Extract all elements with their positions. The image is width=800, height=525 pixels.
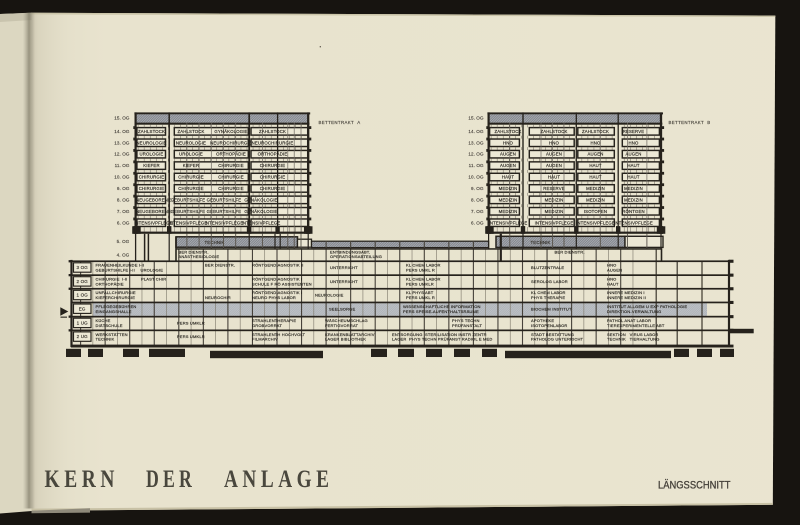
svg-text:NEUROCHIRURGIE: NEUROCHIRURGIE	[210, 140, 252, 145]
svg-text:HAUT: HAUT	[627, 175, 640, 180]
svg-text:NEUROCHIR: NEUROCHIR	[205, 295, 231, 300]
svg-text:CHIRURGIE: CHIRURGIE	[139, 186, 164, 191]
svg-text:10. OG: 10. OG	[468, 175, 484, 180]
svg-text:AUGEN: AUGEN	[625, 152, 641, 157]
svg-text:MEDIZIN: MEDIZIN	[624, 186, 643, 191]
svg-text:LAGER PHYS TECHN PRÜFANST RAD: LAGER PHYS TECHN PRÜFANST RADIOL E MED	[392, 337, 492, 342]
svg-text:INTENSIVPFLEGE: INTENSIVPFLEGE	[489, 220, 528, 225]
svg-text:PERS SPEISE-AUFENTHALTSRÄUME: PERS SPEISE-AUFENTHALTSRÄUME	[403, 309, 479, 314]
svg-text:8. OG: 8. OG	[117, 197, 130, 202]
svg-text:ZAHLSTOCK: ZAHLSTOCK	[138, 129, 165, 134]
svg-text:MEDIZIN: MEDIZIN	[499, 186, 518, 191]
svg-text:BETTENTRAKT A: BETTENTRAKT A	[319, 120, 361, 125]
svg-text:10. OG: 10. OG	[114, 175, 130, 180]
svg-text:PERS UMKLR: PERS UMKLR	[177, 334, 205, 339]
svg-text:HNO: HNO	[629, 140, 640, 145]
svg-text:GEBURTSHILFE: GEBURTSHILFE	[207, 197, 242, 202]
svg-text:NEUGEBORENE: NEUGEBORENE	[136, 197, 171, 202]
svg-text:BER DIENSTR.: BER DIENSTR.	[205, 263, 235, 268]
svg-text:LAGER BIBLIOTHEK: LAGER BIBLIOTHEK	[325, 337, 366, 342]
svg-text:CHIRURGIE: CHIRURGIE	[260, 186, 285, 191]
svg-text:RÖNTGEN: RÖNTGEN	[622, 209, 645, 214]
svg-text:CHIRURGIE: CHIRURGIE	[218, 175, 243, 180]
svg-text:HNO: HNO	[549, 140, 560, 145]
svg-text:NEUROLOGIE: NEUROLOGIE	[176, 140, 206, 145]
svg-text:HAUT: HAUT	[548, 175, 561, 180]
svg-text:HAUT: HAUT	[607, 282, 619, 287]
svg-text:SEROLOG LABOR: SEROLOG LABOR	[531, 279, 568, 284]
svg-text:TECHNIK: TECHNIK	[205, 240, 225, 245]
svg-text:AUGEN: AUGEN	[607, 268, 622, 273]
svg-text:DER: DER	[146, 464, 196, 493]
svg-text:ZAHLSTOCK: ZAHLSTOCK	[494, 129, 521, 134]
svg-text:ANLAGE: ANLAGE	[224, 464, 334, 493]
svg-text:NEUGEBORENE: NEUGEBORENE	[136, 209, 171, 214]
svg-text:CHIRURGIE: CHIRURGIE	[218, 186, 243, 191]
svg-text:9. OG: 9. OG	[471, 186, 484, 191]
svg-text:HAUT: HAUT	[589, 175, 602, 180]
svg-text:AUGEN: AUGEN	[500, 152, 516, 157]
svg-text:KIEFER: KIEFER	[183, 163, 199, 168]
svg-text:HNO: HNO	[591, 140, 602, 145]
svg-text:TECHNIK TIERHALTUNG: TECHNIK TIERHALTUNG	[607, 337, 660, 342]
svg-text:MEDIZIN: MEDIZIN	[545, 209, 564, 214]
svg-text:2 OG: 2 OG	[77, 279, 89, 284]
svg-text:TECHNIK: TECHNIK	[96, 337, 115, 342]
svg-text:TECHNIK: TECHNIK	[531, 240, 551, 245]
svg-text:6. OG: 6. OG	[471, 220, 484, 225]
svg-text:BLUTZENTRALE: BLUTZENTRALE	[531, 265, 564, 270]
svg-text:DIÄTSCHULE: DIÄTSCHULE	[96, 323, 123, 328]
svg-text:ANÄSTHESIOLOGIE: ANÄSTHESIOLOGIE	[179, 254, 220, 259]
svg-text:ZAHLSTOCK: ZAHLSTOCK	[540, 129, 567, 134]
svg-text:HAUT: HAUT	[627, 163, 640, 168]
svg-text:11. OG: 11. OG	[469, 163, 484, 168]
svg-text:INNERE MEDIZIN II: INNERE MEDIZIN II	[607, 295, 646, 300]
svg-text:EINGANGSHALLE: EINGANGSHALLE	[96, 309, 132, 314]
svg-text:NEUROLOGIE: NEUROLOGIE	[136, 140, 166, 145]
svg-text:13. OG: 13. OG	[114, 140, 130, 145]
svg-text:INTENSIVPFLEGE: INTENSIVPFLEGE	[535, 220, 574, 225]
svg-text:12. OG: 12. OG	[468, 152, 484, 157]
svg-text:PERS UMKL R: PERS UMKL R	[406, 295, 435, 300]
svg-text:GROBVORRAT: GROBVORRAT	[252, 323, 282, 328]
svg-text:PATHOLOG UNTERRICHT: PATHOLOG UNTERRICHT	[531, 337, 584, 342]
svg-text:9. OG: 9. OG	[117, 186, 130, 191]
svg-text:MEDIZIN: MEDIZIN	[624, 197, 643, 202]
svg-text:INTENSIVPFLEGE: INTENSIVPFLEGE	[576, 220, 615, 225]
svg-text:CHIRURGIE: CHIRURGIE	[178, 186, 203, 191]
svg-text:GYNÄKOLOGIE: GYNÄKOLOGIE	[244, 209, 277, 214]
svg-text:KIEFERCHIRURGIE: KIEFERCHIRURGIE	[96, 295, 136, 300]
svg-text:ISOTOPEN: ISOTOPEN	[584, 209, 607, 214]
svg-text:RESERVE: RESERVE	[543, 186, 565, 191]
svg-text:15. OG: 15. OG	[468, 116, 484, 121]
svg-text:PRÜFANSTALT: PRÜFANSTALT	[452, 323, 482, 328]
svg-text:MEDIZIN: MEDIZIN	[586, 197, 605, 202]
svg-text:MEDIZIN: MEDIZIN	[586, 186, 605, 191]
svg-text:HAUT: HAUT	[502, 175, 515, 180]
svg-text:GEBURTSHILFE: GEBURTSHILFE	[171, 209, 206, 214]
svg-text:ORTHOPÄDIE: ORTHOPÄDIE	[96, 282, 124, 287]
svg-text:NEUROLOGIE: NEUROLOGIE	[315, 293, 344, 298]
svg-text:BETTENTRAKT B: BETTENTRAKT B	[669, 120, 711, 125]
svg-text:1 UG: 1 UG	[77, 321, 88, 326]
svg-text:TIEREXPERIMENTELLE ABT: TIEREXPERIMENTELLE ABT	[607, 323, 665, 328]
svg-text:CHIRURGIE: CHIRURGIE	[218, 163, 243, 168]
svg-text:BIOCHEM INSTITUT: BIOCHEM INSTITUT	[531, 306, 572, 311]
svg-text:BER DIENSTR.: BER DIENSTR.	[555, 249, 585, 254]
svg-text:12. OG: 12. OG	[114, 152, 130, 157]
svg-text:7. OG: 7. OG	[471, 209, 484, 214]
svg-text:GYNÄKOLOGIE: GYNÄKOLOGIE	[244, 197, 277, 202]
svg-text:AUGEN: AUGEN	[587, 152, 603, 157]
svg-text:HNO: HNO	[503, 140, 514, 145]
svg-text:EG: EG	[79, 306, 86, 311]
svg-text:KERN: KERN	[45, 464, 120, 493]
svg-text:NEURO PHYS LABOR: NEURO PHYS LABOR	[252, 295, 296, 300]
svg-text:ZAHLSTOCK: ZAHLSTOCK	[177, 129, 204, 134]
svg-text:MEDIZIN: MEDIZIN	[499, 209, 518, 214]
svg-text:INTENSIVPFLEGE: INTENSIVPFLEGE	[242, 220, 281, 225]
svg-text:UROLOGIE: UROLOGIE	[179, 152, 203, 157]
svg-text:KIEFER: KIEFER	[143, 163, 159, 168]
svg-text:UNTERRICHT: UNTERRICHT	[330, 265, 358, 270]
svg-text:GEBURTSHILFE I-II: GEBURTSHILFE I-II	[96, 268, 135, 273]
svg-text:GEBURTSHILFE: GEBURTSHILFE	[207, 209, 242, 214]
svg-text:CHIRURGIE: CHIRURGIE	[260, 175, 285, 180]
svg-text:PERS UMKLR: PERS UMKLR	[177, 321, 205, 326]
svg-text:CHIRURGIE: CHIRURGIE	[260, 163, 285, 168]
svg-text:11. OG: 11. OG	[115, 163, 130, 168]
svg-text:CHIRURGIE: CHIRURGIE	[178, 175, 203, 180]
svg-text:4. OG: 4. OG	[117, 253, 130, 258]
svg-text:5. OG: 5. OG	[117, 239, 130, 244]
svg-text:PERS UMKLR: PERS UMKLR	[406, 282, 434, 287]
svg-text:14. OG: 14. OG	[114, 129, 130, 134]
svg-text:CHIRURGIE: CHIRURGIE	[139, 175, 164, 180]
svg-text:OPERATIONSABTEILUNG: OPERATIONSABTEILUNG	[330, 254, 382, 259]
svg-text:AUGEN: AUGEN	[546, 163, 562, 168]
svg-text:13. OG: 13. OG	[468, 140, 484, 145]
svg-text:ISOTOPENLABOR: ISOTOPENLABOR	[531, 323, 568, 328]
svg-text:ZAHLSTOCK: ZAHLSTOCK	[582, 129, 609, 134]
svg-text:PHYS THERAPIE: PHYS THERAPIE	[531, 295, 565, 300]
svg-text:2 UG: 2 UG	[77, 334, 88, 339]
svg-text:INTENSIVPFLEGE: INTENSIVPFLEGE	[205, 220, 244, 225]
svg-text:MEDIZIN: MEDIZIN	[545, 197, 564, 202]
svg-text:1 OG: 1 OG	[77, 293, 89, 298]
svg-text:PERS UMKL R: PERS UMKL R	[406, 268, 435, 273]
svg-text:DIREKTION-VERWALTUNG: DIREKTION-VERWALTUNG	[607, 309, 661, 314]
svg-text:FILMARCHIV: FILMARCHIV	[252, 337, 278, 342]
svg-text:6. OG: 6. OG	[117, 220, 130, 225]
svg-text:UROLOGIE: UROLOGIE	[140, 152, 164, 157]
svg-text:MEDIZIN: MEDIZIN	[499, 197, 518, 202]
svg-text:14. OG: 14. OG	[468, 129, 484, 134]
svg-text:RESERVE: RESERVE	[623, 129, 645, 134]
svg-text:UNTERRICHT: UNTERRICHT	[330, 279, 358, 284]
svg-text:INTENSIVPFLEGE: INTENSIVPFLEGE	[614, 220, 653, 225]
svg-text:HAUT: HAUT	[589, 163, 602, 168]
svg-text:GYNÄKOLOGIE: GYNÄKOLOGIE	[214, 129, 247, 134]
svg-text:ORTHOPÄDIE: ORTHOPÄDIE	[258, 152, 288, 157]
svg-text:15. OG: 15. OG	[114, 116, 130, 121]
svg-text:ORTHOPÄDIE: ORTHOPÄDIE	[216, 152, 246, 157]
svg-text:INTENSIVPFLEGE: INTENSIVPFLEGE	[134, 220, 173, 225]
svg-text:7. OG: 7. OG	[117, 209, 130, 214]
svg-text:AUGEN: AUGEN	[546, 152, 562, 157]
svg-text:INTENSIVPFLEGE: INTENSIVPFLEGE	[169, 220, 208, 225]
svg-text:SEELSORGE: SEELSORGE	[329, 306, 355, 311]
svg-text:LÄNGSSCHNITT: LÄNGSSCHNITT	[658, 480, 731, 492]
svg-text:NEUROCHIRURGIE: NEUROCHIRURGIE	[252, 140, 294, 145]
svg-text:ZAHLSTOCK: ZAHLSTOCK	[259, 129, 286, 134]
svg-text:GEBURTSHILFE: GEBURTSHILFE	[171, 197, 206, 202]
svg-text:UROLOGIE: UROLOGIE	[141, 268, 164, 273]
svg-text:FERTIGVORRAT: FERTIGVORRAT	[325, 323, 359, 328]
svg-text:PLAST CHIR: PLAST CHIR	[141, 277, 166, 282]
svg-text:AUGEN: AUGEN	[500, 163, 516, 168]
svg-text:8. OG: 8. OG	[471, 197, 484, 202]
svg-text:3 OG: 3 OG	[77, 265, 89, 270]
svg-text:SCHULE F RÖ ASSISTENTEN: SCHULE F RÖ ASSISTENTEN	[252, 282, 312, 287]
svg-text:RÖNTGENDIAGNOSTIK II: RÖNTGENDIAGNOSTIK II	[252, 263, 304, 268]
